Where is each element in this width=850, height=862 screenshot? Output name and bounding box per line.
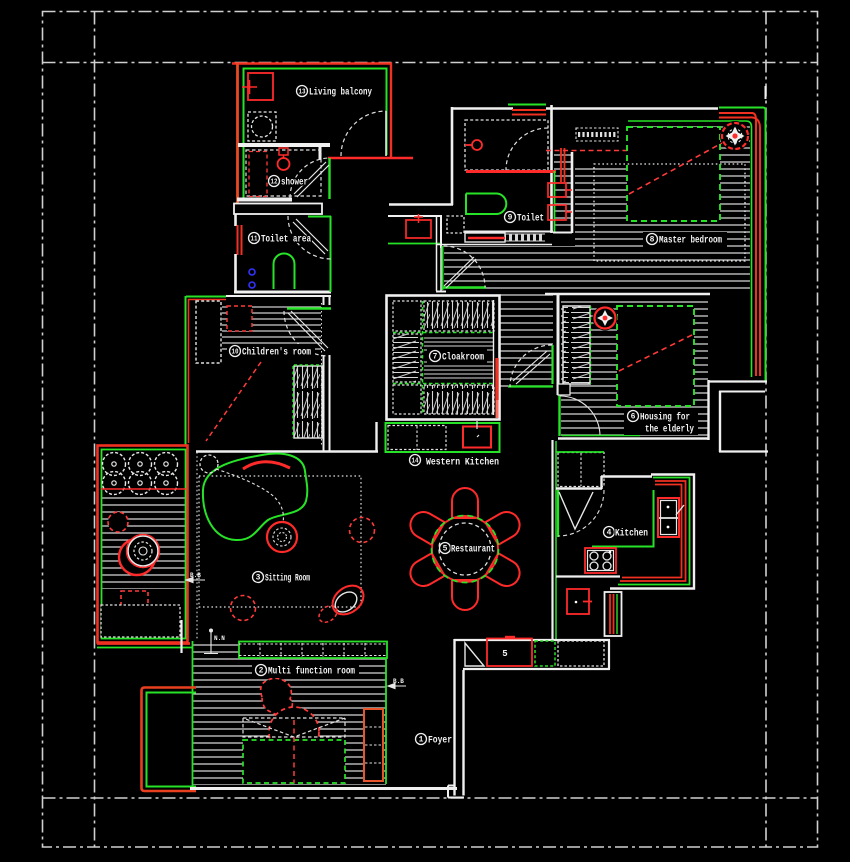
- svg-text:10: 10: [232, 349, 239, 357]
- svg-text:5: 5: [443, 545, 448, 554]
- svg-text:B.B: B.B: [393, 678, 404, 685]
- svg-text:Cloakroom: Cloakroom: [442, 352, 484, 364]
- svg-text:3: 3: [256, 574, 261, 583]
- svg-text:14: 14: [412, 458, 419, 466]
- svg-text:6: 6: [631, 413, 636, 422]
- svg-text:12: 12: [271, 179, 278, 187]
- svg-text:7: 7: [433, 353, 438, 362]
- svg-text:shower: shower: [281, 177, 308, 189]
- svg-text:11: 11: [251, 236, 258, 244]
- svg-text:Kitchen: Kitchen: [615, 528, 648, 540]
- svg-text:Master bedroom: Master bedroom: [659, 235, 722, 247]
- svg-text:1: 1: [419, 736, 424, 745]
- svg-text:Foyer: Foyer: [428, 736, 452, 747]
- svg-text:Multi function room: Multi function room: [268, 666, 355, 678]
- svg-text:Toilet area: Toilet area: [261, 234, 311, 246]
- svg-text:Western Kitchen: Western Kitchen: [426, 457, 499, 469]
- svg-text:4: 4: [607, 529, 612, 538]
- svg-text:B.B: B.B: [190, 572, 201, 579]
- svg-text:13: 13: [299, 89, 306, 97]
- svg-text:2: 2: [259, 667, 264, 676]
- svg-text:Living balcony: Living balcony: [309, 87, 372, 99]
- svg-text:Toilet: Toilet: [517, 213, 544, 225]
- svg-text:9: 9: [508, 214, 513, 223]
- svg-text:Children's room: Children's room: [242, 347, 311, 359]
- svg-text:5: 5: [502, 649, 507, 659]
- svg-text:Restaurant: Restaurant: [451, 545, 495, 556]
- svg-text:Housing for: Housing for: [640, 412, 690, 424]
- svg-text:Sitting Room: Sitting Room: [265, 573, 310, 585]
- svg-text:8: 8: [650, 236, 655, 245]
- svg-text:the elderly: the elderly: [645, 424, 694, 436]
- svg-text:N.N: N.N: [214, 635, 225, 642]
